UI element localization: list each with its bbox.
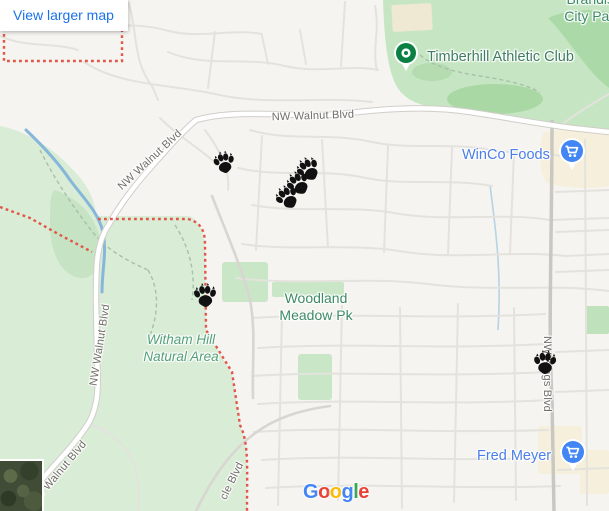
paw-print-marker[interactable] xyxy=(191,281,220,310)
poi-label[interactable]: Fred Meyer xyxy=(477,448,551,464)
park-label-line2: City Par xyxy=(564,8,609,25)
google-logo-letter: e xyxy=(358,481,369,503)
paw-print-icon xyxy=(209,147,239,177)
shopping-cart-icon xyxy=(556,137,588,173)
paw-print-marker[interactable] xyxy=(532,349,559,376)
park-pin-icon xyxy=(391,40,421,74)
poi-fred-meyer[interactable]: Fred Meyer xyxy=(477,438,589,474)
poi-label[interactable]: WinCo Foods xyxy=(462,147,550,163)
park-label-woodland-meadow: Woodland Meadow Pk xyxy=(279,290,352,324)
map-graphics xyxy=(0,0,609,511)
park-label-brandis-city-park: Brandis City Par xyxy=(564,0,609,25)
park-label-witham-hill: Witham Hill Natural Area xyxy=(143,331,218,365)
poi-label[interactable]: Timberhill Athletic Club xyxy=(427,49,574,65)
park-label-line2: Meadow Pk xyxy=(279,307,352,324)
park-label-line1: Witham Hill xyxy=(143,331,218,348)
park-label-line2: Natural Area xyxy=(143,348,218,365)
google-logo-letter: o xyxy=(330,481,342,503)
park-label-line1: Woodland xyxy=(279,290,352,307)
google-logo-letter: g xyxy=(342,481,354,503)
poi-timberhill-athletic-club[interactable]: Timberhill Athletic Club xyxy=(391,40,574,74)
paw-print-icon xyxy=(532,349,559,376)
paw-print-marker[interactable] xyxy=(209,147,239,177)
google-logo-letter: G xyxy=(303,481,318,503)
park-label-line1: Brandis xyxy=(564,0,609,8)
poi-winco-foods[interactable]: WinCo Foods xyxy=(462,137,588,173)
view-larger-map-link[interactable]: View larger map xyxy=(0,0,128,31)
paw-print-icon xyxy=(191,281,220,310)
satellite-thumbnail[interactable] xyxy=(0,459,44,511)
google-logo[interactable]: Google xyxy=(303,481,369,504)
shopping-cart-icon xyxy=(557,438,589,474)
map-canvas[interactable]: NW Walnut Blvd NW Walnut Blvd NW Walnut … xyxy=(0,0,609,511)
google-logo-letter: o xyxy=(318,481,330,503)
